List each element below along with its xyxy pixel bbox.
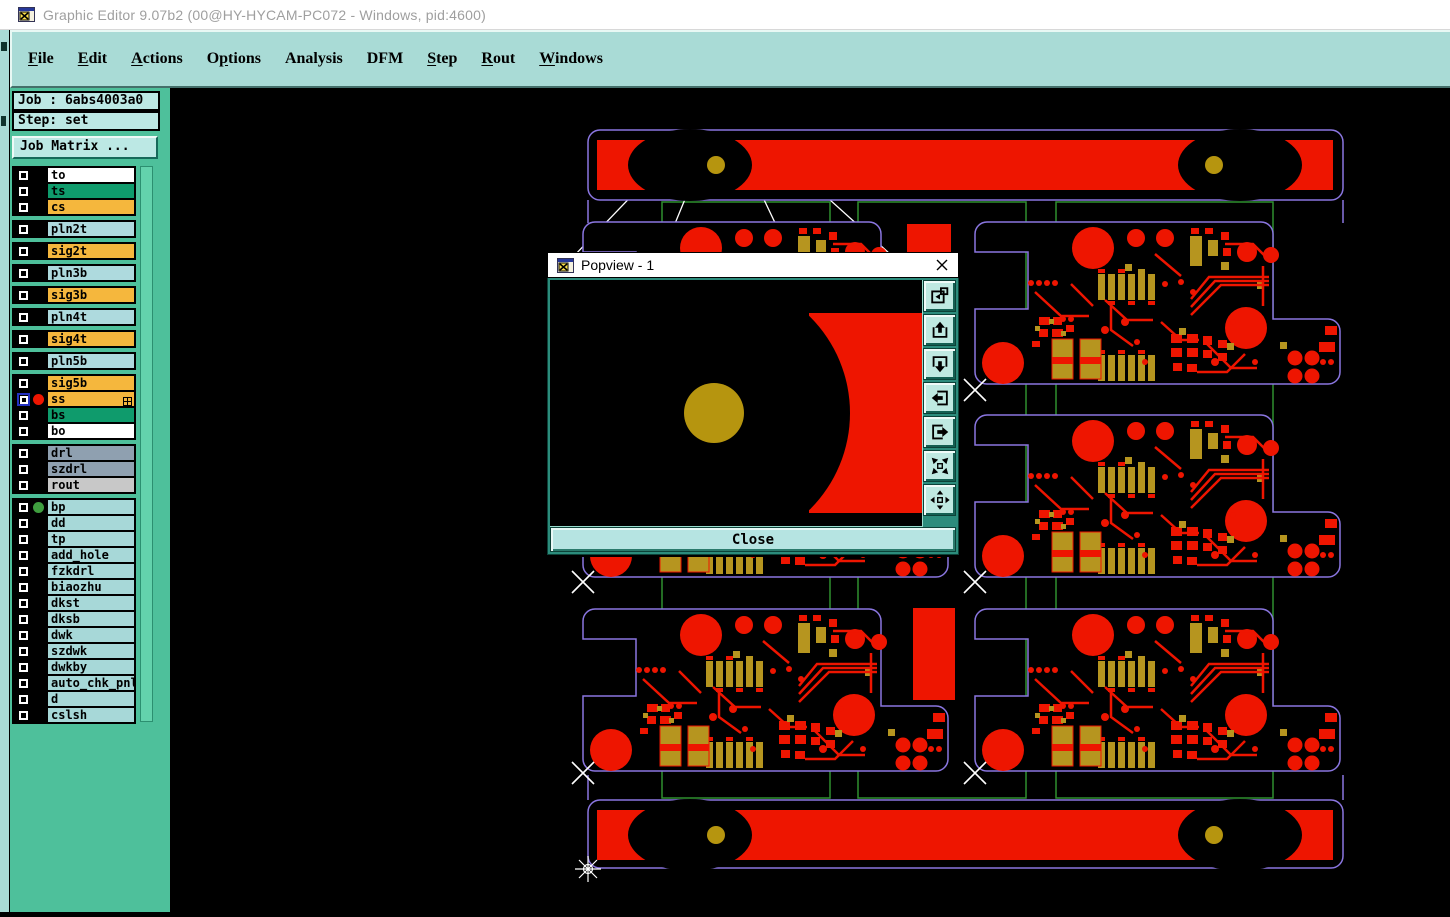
- layer-status-dot-icon: [33, 394, 44, 405]
- arrow-left-icon: [929, 387, 951, 409]
- menu-edit[interactable]: Edit: [78, 50, 107, 68]
- layer-visibility-checkbox[interactable]: [17, 447, 30, 460]
- layer-list: totscspln2tsig2tpln3bsig3bpln4tsig4tpln5…: [12, 166, 136, 728]
- job-matrix-button[interactable]: Job Matrix ...: [12, 136, 158, 159]
- layer-list-wrap: totscspln2tsig2tpln3bsig3bpln4tsig4tpln5…: [12, 166, 170, 728]
- popview-titlebar[interactable]: Popview - 1: [547, 252, 959, 278]
- layer-row-sig3b[interactable]: sig3b: [13, 287, 135, 303]
- layer-checkbox-cell: [13, 531, 47, 547]
- menu-rout[interactable]: Rout: [481, 50, 515, 68]
- layer-visibility-checkbox[interactable]: [17, 409, 30, 422]
- arrow-up-icon: [929, 319, 951, 341]
- tooling-hole-gold-dot: [1205, 826, 1223, 844]
- layer-row-dwkby[interactable]: dwkby: [13, 659, 135, 675]
- layer-name[interactable]: cslsh: [47, 707, 135, 723]
- job-label: Job : 6abs4003a0: [12, 91, 160, 111]
- layer-visibility-checkbox[interactable]: [17, 549, 30, 562]
- tooling-hole-gold-dot: [707, 826, 725, 844]
- layer-visibility-checkbox[interactable]: [17, 517, 30, 530]
- layer-group: pln4t: [12, 308, 136, 326]
- layer-row-pln5b[interactable]: pln5b: [13, 353, 135, 369]
- layer-checkbox-cell: [13, 375, 47, 391]
- panel-copper-bar: [913, 608, 955, 700]
- layer-name[interactable]: pln4t: [47, 309, 135, 325]
- layer-group: drlszdrlrout: [12, 444, 136, 494]
- pan-down-button[interactable]: [923, 348, 956, 380]
- layer-checkbox-cell: [13, 477, 47, 493]
- layer-row-bp[interactable]: bp: [13, 499, 135, 515]
- menu-windows[interactable]: Windows: [539, 50, 603, 68]
- pan-left-button[interactable]: [923, 382, 956, 414]
- layer-checkbox-cell: [13, 265, 47, 281]
- layer-visibility-checkbox[interactable]: [17, 645, 30, 658]
- layer-row-drl[interactable]: drl: [13, 445, 135, 461]
- layer-row-sig5b[interactable]: sig5b: [13, 375, 135, 391]
- tooling-hole-gold-dot: [707, 156, 725, 174]
- window-titlebar[interactable]: Graphic Editor 9.07b2 (00@HY-HYCAM-PC072…: [0, 0, 1450, 30]
- layer-name[interactable]: drl: [47, 445, 135, 461]
- layer-visibility-checkbox[interactable]: [17, 185, 30, 198]
- pcb-board: [975, 609, 1340, 771]
- layer-name[interactable]: bs: [47, 407, 135, 423]
- layer-checkbox-cell: [13, 595, 47, 611]
- layer-group: pln3b: [12, 264, 136, 282]
- layer-group: sig2t: [12, 242, 136, 260]
- layer-name[interactable]: rout: [47, 477, 135, 493]
- layer-visibility-checkbox[interactable]: [17, 425, 30, 438]
- layer-list-scrollbar[interactable]: [140, 166, 153, 722]
- layer-group: sig3b: [12, 286, 136, 304]
- layer-row-ss[interactable]: ss: [13, 391, 135, 407]
- pcb-board: [975, 415, 1340, 577]
- layer-name[interactable]: cs: [47, 199, 135, 215]
- layer-status-dot-icon: [33, 502, 44, 513]
- layer-name[interactable]: szdrl: [47, 461, 135, 477]
- layer-name[interactable]: pln5b: [47, 353, 135, 369]
- layer-row-d[interactable]: d: [13, 691, 135, 707]
- layer-row-sig4t[interactable]: sig4t: [13, 331, 135, 347]
- layer-name[interactable]: dwkby: [47, 659, 135, 675]
- layer-checkbox-cell: [13, 627, 47, 643]
- layer-group: pln2t: [12, 220, 136, 238]
- arrows-in-icon: [929, 455, 951, 477]
- layer-name[interactable]: dwk: [47, 627, 135, 643]
- layer-row-cslsh[interactable]: cslsh: [13, 707, 135, 723]
- layer-row-auto_chk_pnl[interactable]: auto_chk_pnl: [13, 675, 135, 691]
- layer-visibility-checkbox[interactable]: [17, 267, 30, 280]
- layer-visibility-checkbox[interactable]: [17, 533, 30, 546]
- layer-row-pln3b[interactable]: pln3b: [13, 265, 135, 281]
- popview-toolbar: [923, 280, 956, 516]
- layer-name[interactable]: to: [47, 167, 135, 183]
- layer-visibility-checkbox[interactable]: [17, 581, 30, 594]
- layer-checkbox-cell: [13, 407, 47, 423]
- layer-row-pln2t[interactable]: pln2t: [13, 221, 135, 237]
- layer-name[interactable]: bo: [47, 423, 135, 439]
- layer-visibility-checkbox[interactable]: [17, 393, 30, 406]
- layer-name[interactable]: pln3b: [47, 265, 135, 281]
- layer-checkbox-cell: [13, 445, 47, 461]
- layer-visibility-checkbox[interactable]: [17, 333, 30, 346]
- layer-name[interactable]: dd: [47, 515, 135, 531]
- layer-visibility-checkbox[interactable]: [17, 377, 30, 390]
- layer-row-add_hole[interactable]: add_hole: [13, 547, 135, 563]
- layer-checkbox-cell: [13, 707, 47, 723]
- panel-top-rail: [588, 129, 1343, 223]
- layer-row-fzkdrl[interactable]: fzkdrl: [13, 563, 135, 579]
- layer-row-dd[interactable]: dd: [13, 515, 135, 531]
- layer-name[interactable]: fzkdrl: [47, 563, 135, 579]
- layer-visibility-checkbox[interactable]: [17, 597, 30, 610]
- tooling-hole-gold-dot: [1205, 156, 1223, 174]
- layer-group: sig5bssbsbo: [12, 374, 136, 440]
- layer-visibility-checkbox[interactable]: [17, 311, 30, 324]
- layer-name[interactable]: add_hole: [47, 547, 135, 563]
- pan-up-button[interactable]: [923, 314, 956, 346]
- popview-app-icon: [557, 258, 574, 273]
- layer-checkbox-cell: [13, 461, 47, 477]
- pcb-board: [583, 609, 948, 771]
- popout-window-button[interactable]: [923, 280, 956, 312]
- layer-name[interactable]: ss: [47, 391, 135, 407]
- layer-name[interactable]: sig4t: [47, 331, 135, 347]
- popview-body: Close: [547, 278, 959, 555]
- layer-visibility-checkbox[interactable]: [17, 677, 30, 690]
- layer-row-cs[interactable]: cs: [13, 199, 135, 215]
- arrow-down-icon: [929, 353, 951, 375]
- close-icon[interactable]: [935, 258, 949, 272]
- layer-checkbox-cell: [13, 221, 47, 237]
- layer-checkbox-cell: [13, 611, 47, 627]
- layer-visibility-checkbox[interactable]: [17, 245, 30, 258]
- menu-analysis[interactable]: Analysis: [285, 50, 343, 68]
- layer-visibility-checkbox[interactable]: [17, 463, 30, 476]
- layer-name[interactable]: biaozhu: [47, 579, 135, 595]
- layer-visibility-checkbox[interactable]: [17, 693, 30, 706]
- app-window-icon: [18, 7, 35, 22]
- layer-visibility-checkbox[interactable]: [17, 629, 30, 642]
- pan-center-button[interactable]: [923, 484, 956, 516]
- layer-row-ts[interactable]: ts: [13, 183, 135, 199]
- layer-checkbox-cell: [13, 167, 47, 183]
- layer-visibility-checkbox[interactable]: [17, 201, 30, 214]
- layer-group: sig4t: [12, 330, 136, 348]
- layer-name[interactable]: tp: [47, 531, 135, 547]
- layer-checkbox-cell: [13, 243, 47, 259]
- layer-checkbox-cell: [13, 515, 47, 531]
- layer-checkbox-cell: [13, 309, 47, 325]
- layer-visibility-checkbox[interactable]: [17, 661, 30, 674]
- layer-group: pln5b: [12, 352, 136, 370]
- pcb-board: [975, 222, 1340, 384]
- popview-title: Popview - 1: [581, 257, 654, 273]
- layer-name[interactable]: dkst: [47, 595, 135, 611]
- layer-name[interactable]: szdwk: [47, 643, 135, 659]
- layer-grid-badge-icon: [123, 395, 132, 404]
- sidebar: Job : 6abs4003a0 Step: set Job Matrix ..…: [10, 88, 170, 912]
- layer-visibility-checkbox[interactable]: [17, 709, 30, 722]
- menu-dfm[interactable]: DFM: [367, 50, 403, 68]
- layer-visibility-checkbox[interactable]: [17, 169, 30, 182]
- layer-checkbox-cell: [13, 659, 47, 675]
- layer-checkbox-cell: [13, 499, 47, 515]
- layer-visibility-checkbox[interactable]: [17, 289, 30, 302]
- layer-row-dkst[interactable]: dkst: [13, 595, 135, 611]
- layer-row-dksb[interactable]: dksb: [13, 611, 135, 627]
- layer-visibility-checkbox[interactable]: [17, 479, 30, 492]
- arrows-out-icon: [929, 489, 951, 511]
- layer-name[interactable]: sig3b: [47, 287, 135, 303]
- layer-checkbox-cell: [13, 353, 47, 369]
- layer-group: totscs: [12, 166, 136, 216]
- layer-row-bs[interactable]: bs: [13, 407, 135, 423]
- popview-zoom-canvas[interactable]: [550, 280, 923, 527]
- layer-visibility-checkbox[interactable]: [17, 613, 30, 626]
- layer-checkbox-cell: [13, 199, 47, 215]
- menu-options[interactable]: Options: [207, 50, 261, 68]
- layer-checkbox-cell: [13, 691, 47, 707]
- layer-name[interactable]: sig2t: [47, 243, 135, 259]
- layer-visibility-checkbox[interactable]: [17, 565, 30, 578]
- layer-row-szdrl[interactable]: szdrl: [13, 461, 135, 477]
- menu-file[interactable]: File: [28, 50, 54, 68]
- layer-checkbox-cell: [13, 579, 47, 595]
- layer-row-sig2t[interactable]: sig2t: [13, 243, 135, 259]
- layer-row-szdwk[interactable]: szdwk: [13, 643, 135, 659]
- layer-checkbox-cell: [13, 331, 47, 347]
- window-title: Graphic Editor 9.07b2 (00@HY-HYCAM-PC072…: [43, 7, 486, 23]
- layer-name[interactable]: pln2t: [47, 221, 135, 237]
- layer-checkbox-cell: [13, 643, 47, 659]
- layer-visibility-checkbox[interactable]: [17, 223, 30, 236]
- layer-name[interactable]: bp: [47, 499, 135, 515]
- window-copy-icon: [929, 285, 951, 307]
- layer-checkbox-cell: [13, 547, 47, 563]
- step-label: Step: set: [12, 111, 160, 131]
- layer-row-dwk[interactable]: dwk: [13, 627, 135, 643]
- layer-row-to[interactable]: to: [13, 167, 135, 183]
- layer-checkbox-cell: [13, 675, 47, 691]
- menu-bar: FileEditActionsOptionsAnalysisDFMStepRou…: [10, 30, 1450, 88]
- zoom-gold-pad: [684, 383, 744, 443]
- layer-checkbox-cell: [13, 287, 47, 303]
- popview-window[interactable]: Popview - 1 Close: [547, 252, 959, 555]
- zoom-fit-button[interactable]: [923, 450, 956, 482]
- pan-right-button[interactable]: [923, 416, 956, 448]
- layer-row-tp[interactable]: tp: [13, 531, 135, 547]
- graphic-editor-window: { "window": { "title": "Graphic Editor 9…: [0, 0, 1450, 912]
- layer-visibility-checkbox[interactable]: [17, 501, 30, 514]
- panel-bottom-rail: [588, 775, 1343, 871]
- layer-name[interactable]: ts: [47, 183, 135, 199]
- layer-row-pln4t[interactable]: pln4t: [13, 309, 135, 325]
- layer-checkbox-cell: [13, 423, 47, 439]
- layer-row-bo[interactable]: bo: [13, 423, 135, 439]
- layer-name[interactable]: sig5b: [47, 375, 135, 391]
- layer-visibility-checkbox[interactable]: [17, 355, 30, 368]
- layer-group: bpddtpadd_holefzkdrlbiaozhudkstdksbdwksz…: [12, 498, 136, 724]
- layer-name[interactable]: dksb: [47, 611, 135, 627]
- popview-close-button[interactable]: Close: [550, 527, 956, 552]
- layer-row-rout[interactable]: rout: [13, 477, 135, 493]
- layer-name[interactable]: auto_chk_pnl: [47, 675, 135, 691]
- layer-checkbox-cell: [13, 391, 47, 407]
- layer-row-biaozhu[interactable]: biaozhu: [13, 579, 135, 595]
- layer-name[interactable]: d: [47, 691, 135, 707]
- background-window-edge: [0, 30, 10, 912]
- arrow-right-icon: [929, 421, 951, 443]
- layer-checkbox-cell: [13, 563, 47, 579]
- layer-checkbox-cell: [13, 183, 47, 199]
- menu-step[interactable]: Step: [427, 50, 457, 68]
- menu-actions[interactable]: Actions: [131, 50, 183, 68]
